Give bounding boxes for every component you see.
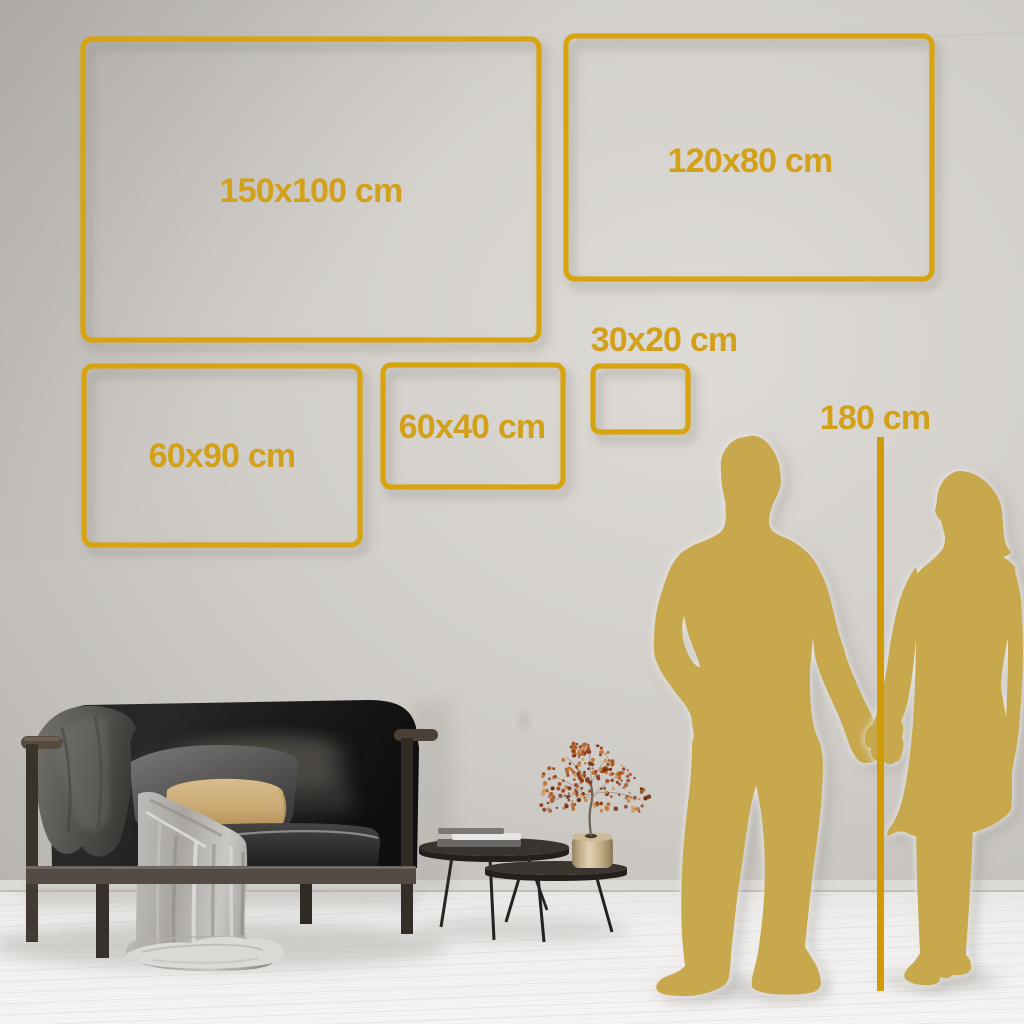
- svg-text:30x20 cm: 30x20 cm: [591, 321, 738, 359]
- svg-text:120x80 cm: 120x80 cm: [668, 142, 833, 180]
- svg-text:180 cm: 180 cm: [820, 399, 931, 437]
- svg-text:60x40 cm: 60x40 cm: [399, 408, 546, 446]
- svg-text:60x90 cm: 60x90 cm: [149, 437, 296, 475]
- svg-text:150x100 cm: 150x100 cm: [220, 172, 403, 210]
